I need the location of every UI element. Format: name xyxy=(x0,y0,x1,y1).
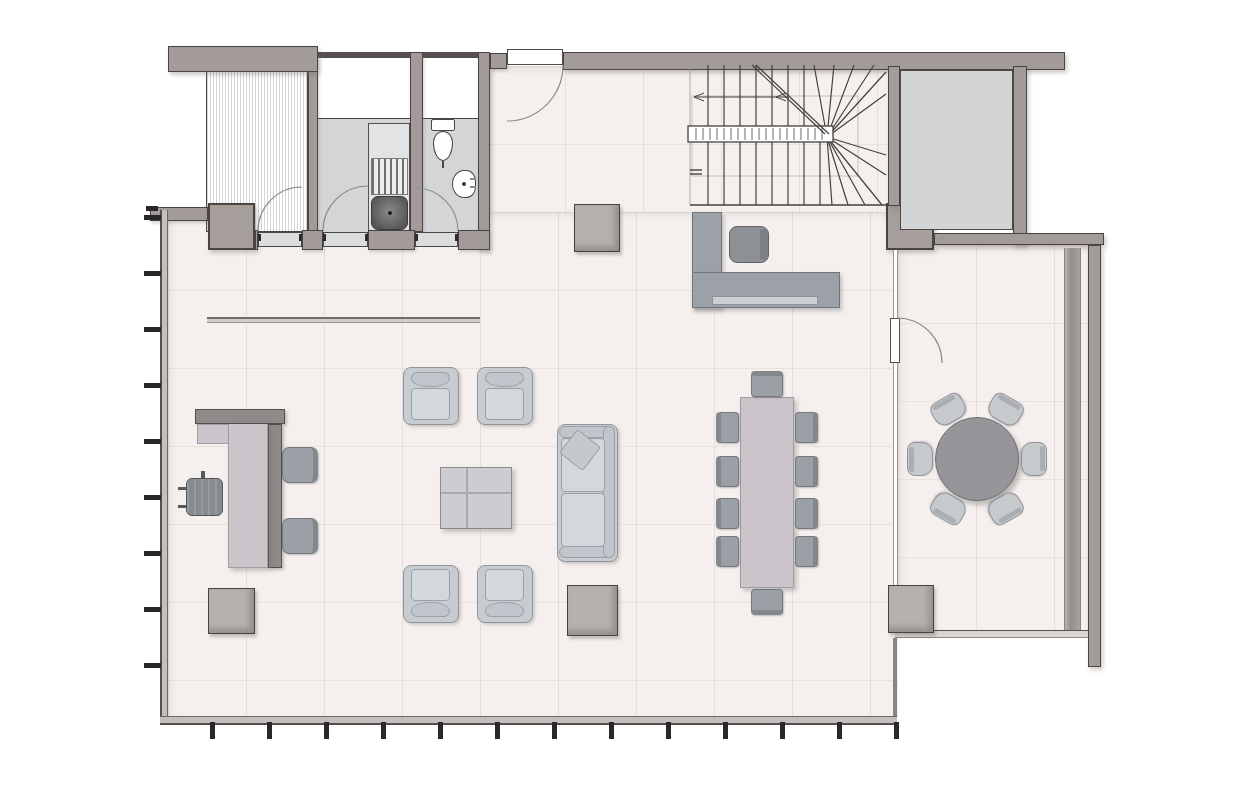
floor-plan xyxy=(0,0,1260,791)
door-swing-arcs xyxy=(0,0,1260,791)
